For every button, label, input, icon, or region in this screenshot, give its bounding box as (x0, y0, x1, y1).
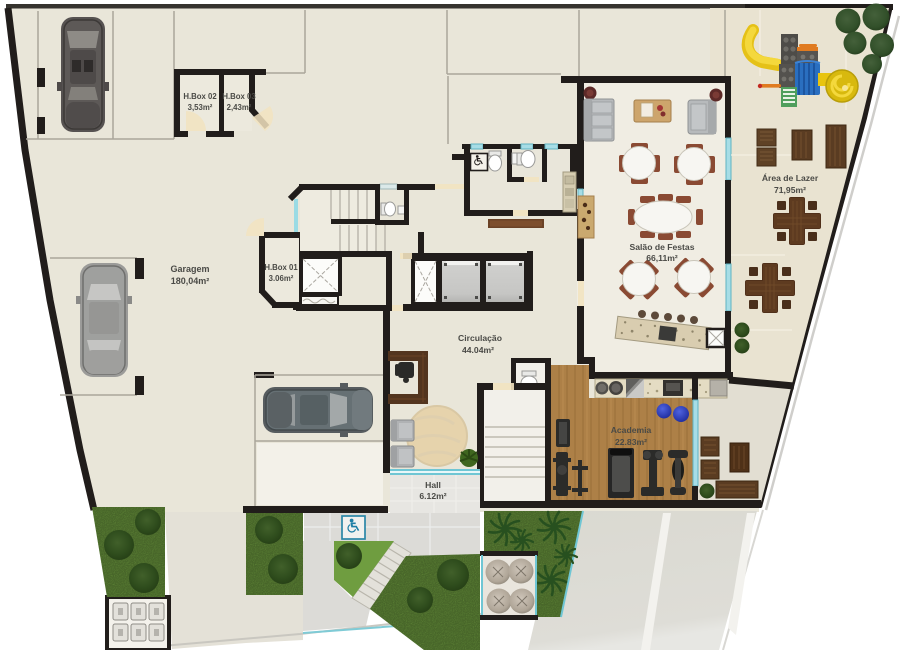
svg-text:Academia: Academia (611, 425, 652, 435)
svg-text:71,95m²: 71,95m² (774, 185, 806, 195)
svg-text:3.06m²: 3.06m² (269, 274, 294, 283)
svg-text:H.Box 02: H.Box 02 (183, 92, 217, 101)
svg-text:2,43m²: 2,43m² (227, 103, 252, 112)
svg-text:Salão de Festas: Salão de Festas (630, 242, 695, 252)
svg-text:H.Box 03: H.Box 03 (222, 92, 256, 101)
svg-text:180,04m²: 180,04m² (171, 276, 210, 286)
svg-text:Área de Lazer: Área de Lazer (762, 173, 819, 183)
svg-text:66,11m²: 66,11m² (646, 253, 678, 263)
svg-text:Garagem: Garagem (170, 264, 209, 274)
svg-text:Circulação: Circulação (458, 333, 502, 343)
svg-text:6.12m²: 6.12m² (419, 491, 446, 501)
svg-text:Hall: Hall (425, 480, 441, 490)
svg-text:44.04m²: 44.04m² (462, 345, 494, 355)
svg-text:22.83m²: 22.83m² (615, 437, 647, 447)
svg-text:3,53m²: 3,53m² (188, 103, 213, 112)
svg-text:H.Box 01: H.Box 01 (264, 263, 298, 272)
